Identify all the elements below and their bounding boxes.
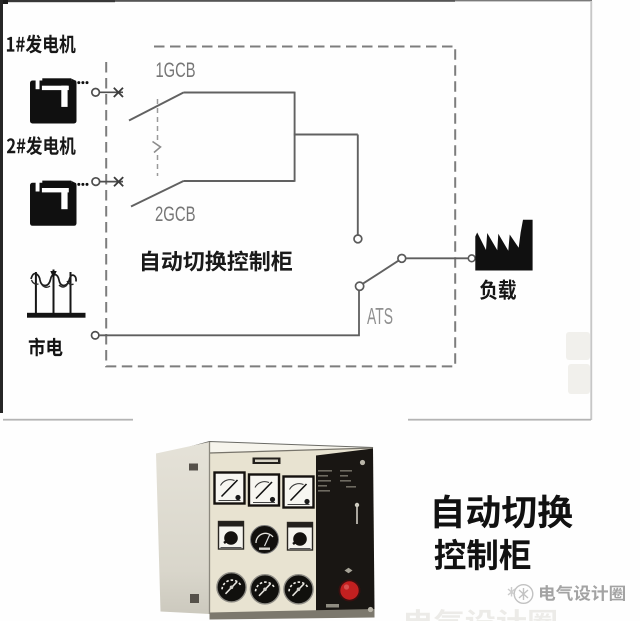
svg-text:1GCB: 1GCB	[156, 59, 196, 82]
svg-text:ATS: ATS	[367, 303, 393, 329]
svg-text:2GCB: 2GCB	[155, 203, 196, 226]
